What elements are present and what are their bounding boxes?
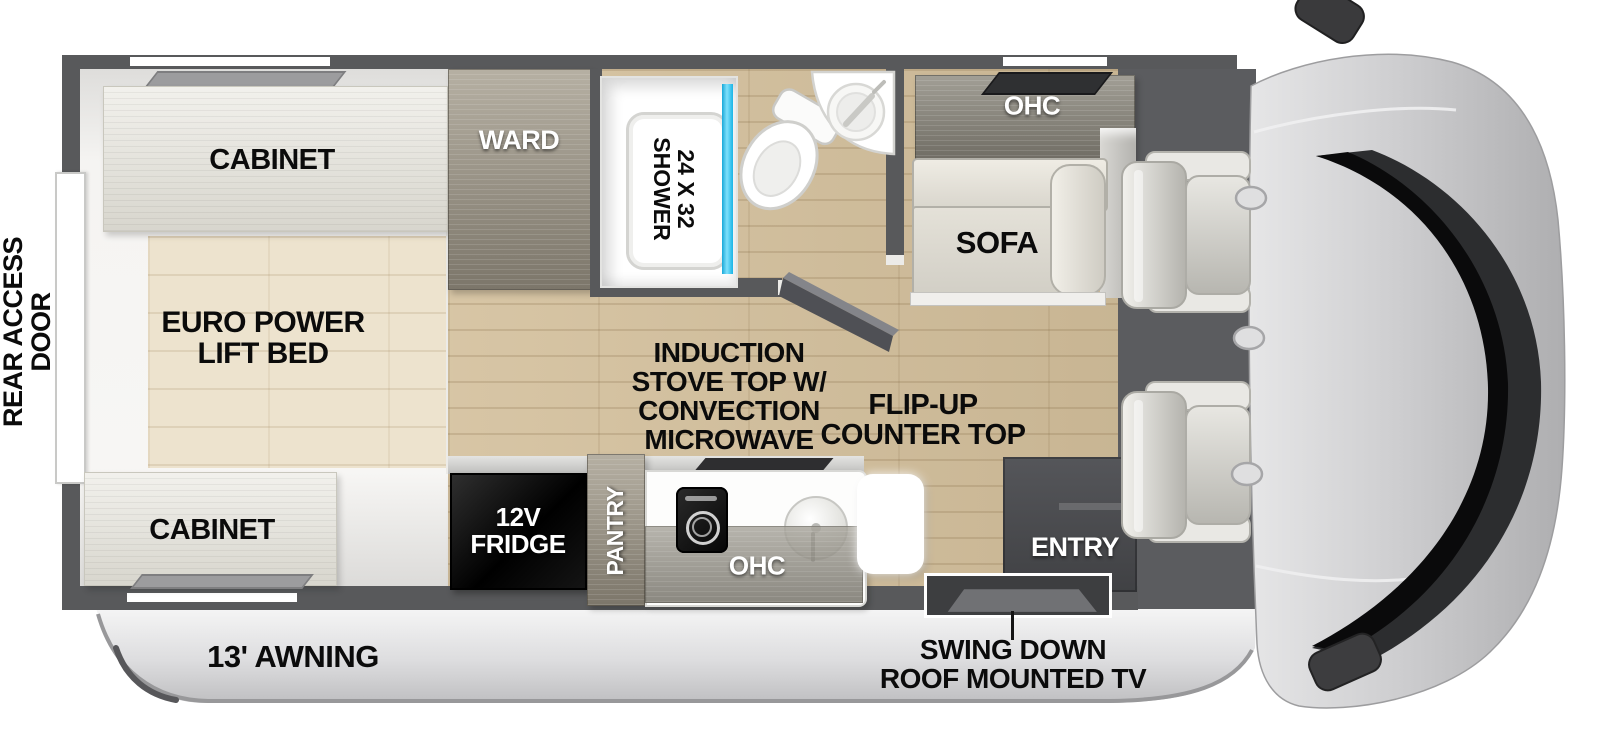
ohc-rear-label: OHC bbox=[1004, 92, 1060, 119]
window-slot-rear-bottom bbox=[127, 593, 297, 602]
vent-rear-bottom bbox=[130, 574, 314, 589]
ohc-kitchen-label: OHC bbox=[729, 552, 785, 579]
awning-label: 13' AWNING bbox=[207, 641, 379, 673]
rear-cabinet-bottom-label: CABINET bbox=[149, 515, 274, 545]
cab-body bbox=[1249, 54, 1565, 708]
rear-access-door-label: REAR ACCESS DOOR bbox=[0, 237, 55, 427]
side-mirror-bottom bbox=[1305, 629, 1385, 694]
stove-vent-slot bbox=[685, 496, 717, 501]
rear-access-door bbox=[55, 172, 86, 484]
side-mirror-top bbox=[1291, 0, 1369, 48]
awning-corner-shadow bbox=[116, 648, 176, 700]
window-slot-rear-top bbox=[130, 57, 330, 66]
pantry-label: PANTRY bbox=[604, 487, 628, 576]
stove-burner-inner-ring bbox=[692, 517, 712, 537]
rv-floorplan-diagram: REAR ACCESS DOOR CABINET EURO POWER LIFT… bbox=[0, 0, 1600, 743]
wardrobe bbox=[448, 69, 592, 290]
flip-up-counter bbox=[857, 474, 924, 574]
window-slot-sofa-top bbox=[1003, 57, 1107, 66]
bath-right-wall bbox=[886, 69, 904, 257]
roof-seam-top bbox=[1254, 108, 1456, 132]
euro-power-lift-bed-label: EURO POWER LIFT BED bbox=[161, 307, 364, 369]
fridge-label: 12V FRIDGE bbox=[470, 504, 565, 558]
shower-glass-panel bbox=[722, 84, 733, 274]
induction-stove-label: INDUCTION STOVE TOP W/ CONVECTION MICROW… bbox=[632, 338, 827, 454]
cab-floor bbox=[1118, 69, 1256, 609]
wardrobe-label: WARD bbox=[479, 126, 560, 154]
roof-seam-bottom bbox=[1256, 566, 1420, 581]
bath-door-jamb-left bbox=[778, 280, 786, 295]
entry-label: ENTRY bbox=[1031, 533, 1119, 561]
entry-step bbox=[1059, 503, 1137, 510]
bath-door-jamb-right bbox=[886, 255, 904, 265]
induction-stove bbox=[676, 487, 728, 553]
windshield bbox=[1312, 152, 1508, 652]
sofa-platform bbox=[910, 292, 1106, 306]
swing-down-tv-label: SWING DOWN ROOF MOUNTED TV bbox=[880, 635, 1146, 693]
swing-down-tv bbox=[924, 573, 1112, 618]
sofa-armrest bbox=[1050, 164, 1106, 296]
rear-cabinet-top-label: CABINET bbox=[209, 145, 334, 175]
entry-area bbox=[1003, 457, 1137, 592]
bath-left-wall bbox=[590, 69, 602, 295]
tv-screen bbox=[938, 589, 1102, 612]
shower-label: 24 X 32 SHOWER bbox=[649, 137, 697, 241]
flip-up-counter-label: FLIP-UP COUNTER TOP bbox=[820, 390, 1025, 450]
sofa-label: SOFA bbox=[956, 227, 1038, 259]
windshield-outer bbox=[1312, 150, 1541, 660]
